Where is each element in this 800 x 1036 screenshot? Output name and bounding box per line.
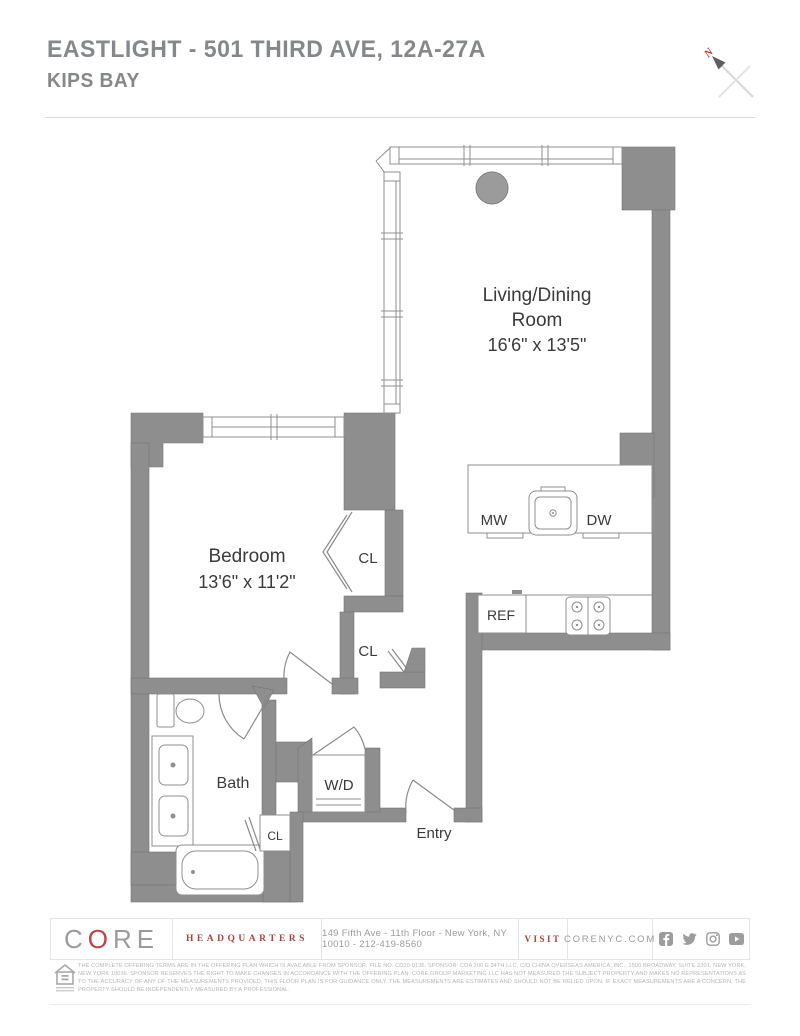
room-labels: Living/Dining Room 16'6" x 13'5" Bedroom… xyxy=(198,285,612,843)
living-dining-dims: 16'6" x 13'5" xyxy=(488,335,587,355)
legal-disclaimer: THE COMPLETE OFFERING TERMS ARE IN THE O… xyxy=(78,962,746,994)
toilet-tank xyxy=(157,694,174,727)
bedroom-dims: 13'6" x 11'2" xyxy=(198,572,295,592)
closet1-bifold-door xyxy=(327,512,352,592)
bedroom-door xyxy=(284,652,332,687)
headquarters-label: HEADQUARTERS xyxy=(186,934,308,944)
closet2-label: CL xyxy=(358,643,377,660)
logo-letter-c: C xyxy=(64,924,88,954)
refrigerator-label: REF xyxy=(487,607,515,623)
microwave-label: MW xyxy=(481,512,508,529)
office-address: 149 Fifth Ave - 11th Floor - New York, N… xyxy=(322,928,518,950)
floor-plan: N xyxy=(0,0,800,1036)
toilet-bowl xyxy=(176,699,204,723)
core-logo: CORE xyxy=(51,919,173,959)
facebook-icon xyxy=(659,932,673,946)
bath-label: Bath xyxy=(217,775,250,792)
logo-letter-o: O xyxy=(88,924,113,954)
compass-north-icon: N xyxy=(701,45,753,97)
entry-label: Entry xyxy=(416,825,452,842)
website-url: CORENYC.COM xyxy=(564,934,656,945)
twitter-icon xyxy=(682,933,697,946)
washer-dryer-label: W/D xyxy=(324,777,353,794)
logo-letters-re: RE xyxy=(113,924,159,954)
bath-closet-door xyxy=(249,817,260,849)
entry-door xyxy=(406,780,458,813)
equal-housing-icon xyxy=(52,960,78,994)
bedroom-label: Bedroom xyxy=(208,546,285,567)
living-dining-label-2: Room xyxy=(512,310,563,331)
closet3-label: CL xyxy=(267,829,283,843)
closet1-label: CL xyxy=(358,550,377,567)
social-icons xyxy=(653,919,749,959)
visit-label: VISIT xyxy=(524,934,561,944)
dishwasher-label: DW xyxy=(587,512,613,529)
column xyxy=(476,172,508,204)
bottom-hairline xyxy=(50,1004,750,1005)
living-dining-label-1: Living/Dining xyxy=(483,285,592,306)
washer-dryer-door xyxy=(313,727,365,755)
youtube-icon xyxy=(729,933,744,945)
footer-bar: CORE HEADQUARTERS 149 Fifth Ave - 11th F… xyxy=(50,918,750,960)
instagram-icon xyxy=(706,932,720,946)
